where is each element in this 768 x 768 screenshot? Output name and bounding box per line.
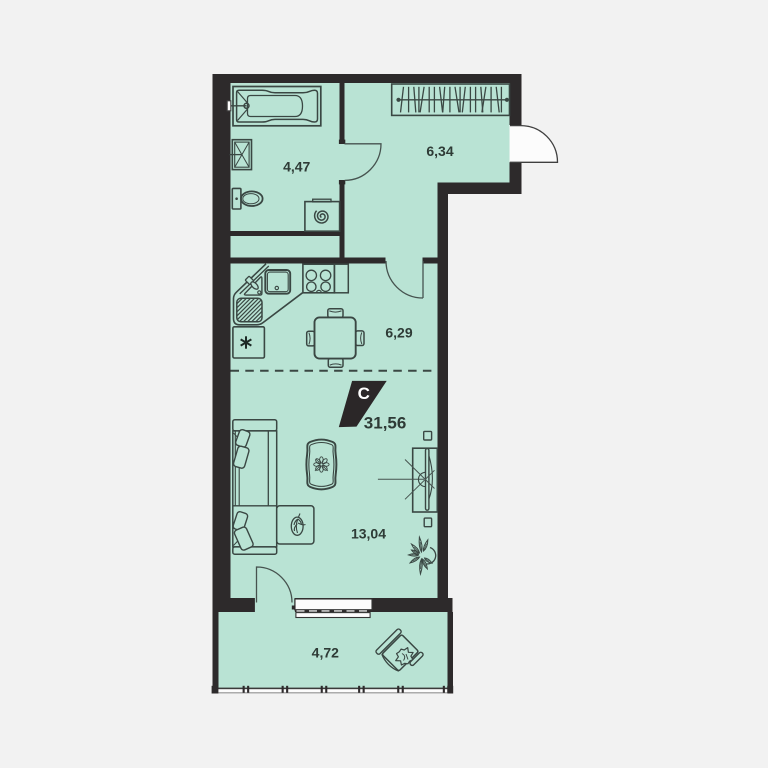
svg-text:6,29: 6,29: [385, 325, 412, 341]
svg-text:31,56: 31,56: [364, 413, 407, 432]
svg-text:13,04: 13,04: [351, 526, 386, 542]
svg-text:6,34: 6,34: [426, 143, 453, 159]
svg-text:4,47: 4,47: [283, 159, 310, 175]
svg-text:C: C: [358, 384, 370, 403]
svg-text:4,72: 4,72: [312, 644, 339, 660]
